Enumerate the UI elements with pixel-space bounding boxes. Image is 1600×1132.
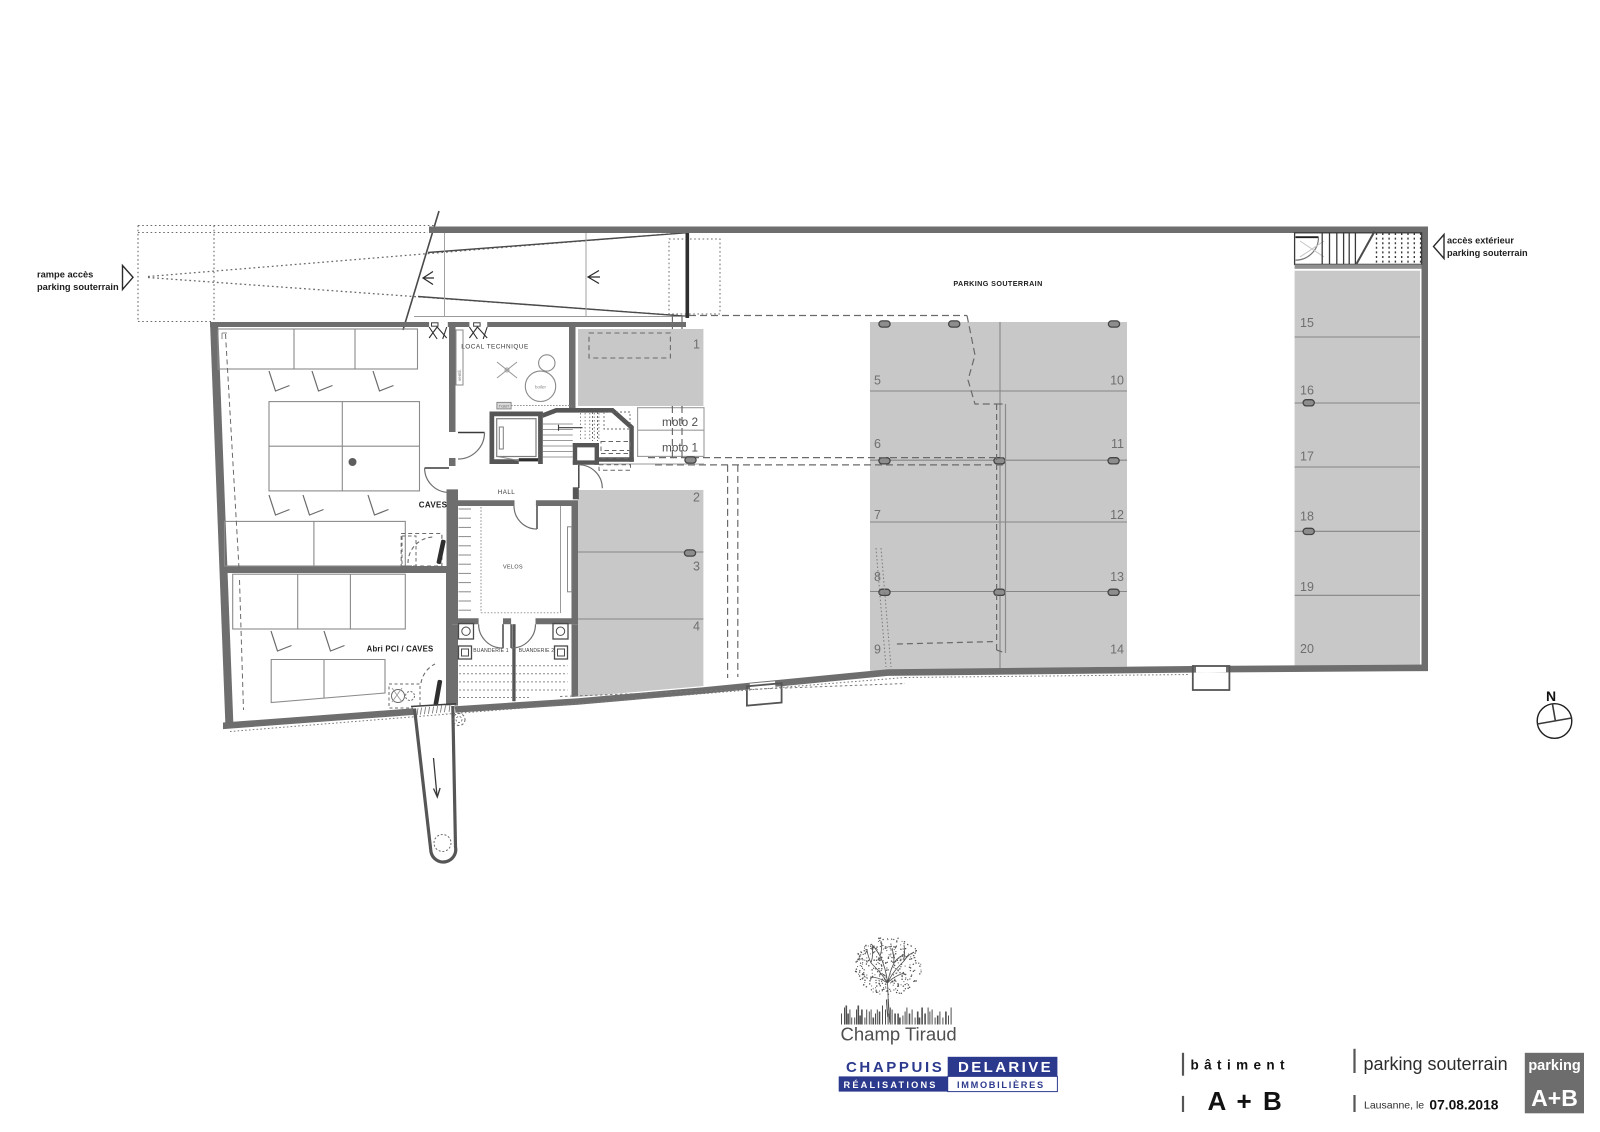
svg-text:ventil.: ventil. bbox=[457, 369, 462, 381]
svg-text:10: 10 bbox=[1110, 374, 1124, 388]
svg-text:Abri PCI / CAVES: Abri PCI / CAVES bbox=[367, 644, 434, 653]
svg-text:parking souterrain: parking souterrain bbox=[1447, 248, 1528, 258]
svg-text:LOCAL TECHNIQUE: LOCAL TECHNIQUE bbox=[461, 344, 529, 351]
svg-text:CHAPPUIS: CHAPPUIS bbox=[846, 1059, 944, 1076]
svg-text:1: 1 bbox=[693, 338, 700, 352]
svg-text:PARKING SOUTERRAIN: PARKING SOUTERRAIN bbox=[953, 279, 1042, 288]
svg-text:rampe accès: rampe accès bbox=[37, 270, 93, 280]
svg-text:VELOS: VELOS bbox=[503, 565, 523, 571]
svg-text:RÉALISATIONS: RÉALISATIONS bbox=[844, 1079, 938, 1090]
svg-text:5: 5 bbox=[874, 374, 881, 388]
svg-text:boiler: boiler bbox=[535, 385, 547, 390]
svg-text:17: 17 bbox=[1300, 450, 1314, 464]
svg-text:7: 7 bbox=[874, 508, 881, 522]
svg-text:N: N bbox=[1546, 688, 1556, 704]
svg-text:parking souterrain: parking souterrain bbox=[37, 282, 119, 292]
svg-text:9: 9 bbox=[874, 642, 881, 656]
svg-text:accès extérieur: accès extérieur bbox=[1447, 236, 1514, 246]
svg-text:13: 13 bbox=[1110, 570, 1124, 584]
svg-text:TGBT: TGBT bbox=[499, 404, 510, 409]
svg-text:moto 2: moto 2 bbox=[662, 415, 698, 429]
svg-text:11: 11 bbox=[1111, 437, 1124, 451]
svg-text:BUANDERIE 1: BUANDERIE 1 bbox=[473, 648, 509, 654]
svg-text:IMMOBILIÈRES: IMMOBILIÈRES bbox=[957, 1079, 1045, 1090]
svg-text:8: 8 bbox=[874, 570, 881, 584]
svg-text:parking souterrain: parking souterrain bbox=[1364, 1054, 1508, 1074]
svg-text:15: 15 bbox=[1300, 316, 1314, 330]
svg-text:4: 4 bbox=[693, 620, 700, 634]
svg-text:CAVES: CAVES bbox=[419, 501, 448, 510]
svg-text:3: 3 bbox=[693, 560, 700, 574]
svg-text:Lausanne, le: Lausanne, le bbox=[1364, 1100, 1424, 1112]
svg-text:A + B: A + B bbox=[1208, 1086, 1284, 1116]
svg-text:moto 1: moto 1 bbox=[662, 440, 698, 454]
svg-text:19: 19 bbox=[1300, 580, 1314, 594]
svg-text:20: 20 bbox=[1300, 642, 1314, 656]
svg-text:BUANDERIE 2: BUANDERIE 2 bbox=[519, 648, 555, 654]
svg-text:HALL: HALL bbox=[498, 489, 516, 496]
svg-text:16: 16 bbox=[1300, 384, 1314, 398]
svg-text:DELARIVE: DELARIVE bbox=[958, 1059, 1053, 1076]
svg-text:07.08.2018: 07.08.2018 bbox=[1429, 1098, 1498, 1113]
svg-text:2: 2 bbox=[693, 491, 700, 505]
svg-text:6: 6 bbox=[874, 437, 881, 451]
svg-text:A+B: A+B bbox=[1531, 1085, 1578, 1111]
svg-text:14: 14 bbox=[1110, 642, 1124, 656]
svg-text:18: 18 bbox=[1300, 510, 1314, 524]
svg-text:bâtiment: bâtiment bbox=[1191, 1058, 1290, 1073]
svg-text:12: 12 bbox=[1110, 508, 1124, 522]
svg-text:Champ Tiraud: Champ Tiraud bbox=[841, 1024, 957, 1045]
svg-text:parking: parking bbox=[1528, 1058, 1580, 1074]
